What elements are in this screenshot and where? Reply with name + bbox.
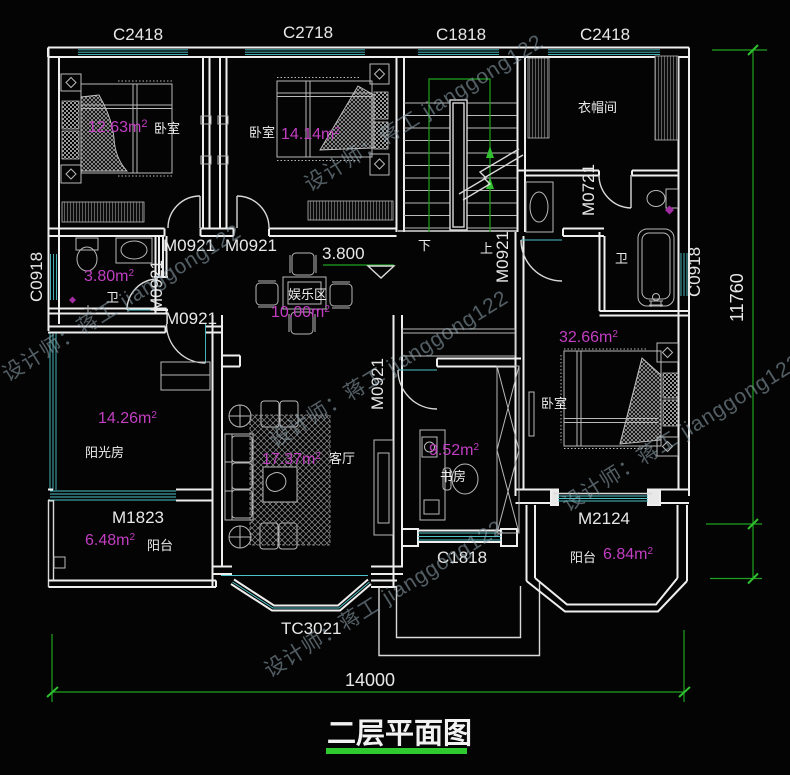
svg-text:阳台: 阳台: [570, 550, 596, 565]
svg-text:32.66m2: 32.66m2: [559, 329, 618, 346]
svg-text:17.37m2: 17.37m2: [262, 451, 321, 468]
svg-text:C2718: C2718: [283, 23, 333, 42]
svg-text:卧室: 卧室: [249, 125, 275, 140]
svg-text:M1823: M1823: [112, 508, 164, 527]
svg-text:卧室: 卧室: [541, 396, 567, 411]
svg-text:12.63m2: 12.63m2: [88, 118, 148, 136]
svg-text:6.84m2: 6.84m2: [603, 546, 653, 563]
svg-text:14.26m2: 14.26m2: [98, 410, 157, 427]
svg-text:9.52m2: 9.52m2: [429, 442, 479, 459]
svg-text:6.48m2: 6.48m2: [85, 532, 135, 549]
svg-text:C2418: C2418: [580, 25, 630, 44]
svg-text:下: 下: [418, 238, 431, 253]
svg-text:C0918: C0918: [685, 247, 704, 297]
svg-text:M0921: M0921: [493, 231, 512, 283]
svg-text:14.14m2: 14.14m2: [281, 126, 340, 143]
svg-text:卧室: 卧室: [154, 121, 180, 136]
svg-text:C0918: C0918: [27, 252, 46, 302]
svg-text:客厅: 客厅: [329, 451, 355, 466]
svg-text:M0921: M0921: [165, 309, 217, 328]
svg-text:二层平面图: 二层平面图: [327, 718, 472, 750]
svg-text:上: 上: [480, 241, 493, 256]
svg-text:3.80m2: 3.80m2: [84, 268, 134, 285]
svg-text:M0721: M0721: [579, 164, 598, 216]
svg-text:阳光房: 阳光房: [85, 445, 124, 460]
svg-text:阳台: 阳台: [147, 538, 173, 553]
svg-text:14000: 14000: [345, 670, 395, 690]
svg-text:M2124: M2124: [578, 509, 630, 528]
svg-text:衣帽间: 衣帽间: [578, 100, 617, 115]
svg-text:3.800: 3.800: [322, 244, 365, 263]
svg-text:C2418: C2418: [113, 25, 163, 44]
svg-text:11760: 11760: [727, 273, 747, 322]
svg-text:娱乐区: 娱乐区: [288, 287, 327, 302]
svg-text:10.00m2: 10.00m2: [271, 304, 330, 321]
svg-text:C1818: C1818: [436, 25, 486, 44]
svg-text:卫: 卫: [615, 251, 628, 266]
svg-text:书房: 书房: [440, 469, 466, 484]
